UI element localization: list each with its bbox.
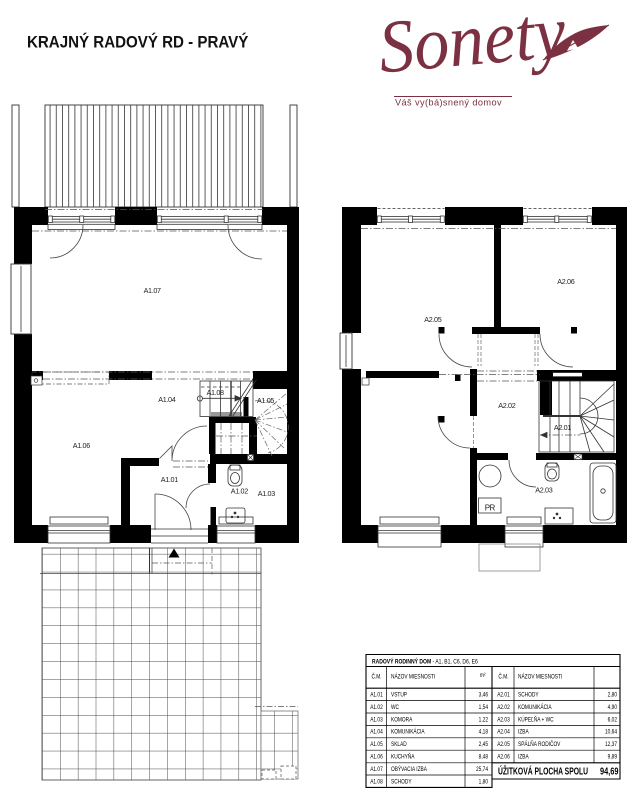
svg-text:KÚPEĽŇA + WC: KÚPEĽŇA + WC (518, 716, 554, 724)
svg-text:A2.01: A2.01 (497, 692, 510, 699)
svg-text:A2.02: A2.02 (497, 704, 510, 711)
svg-text:Č.M.: Č.M. (498, 673, 508, 681)
svg-text:A1.01: A1.01 (370, 692, 383, 699)
svg-text:KOMUNIKÁCIA: KOMUNIKÁCIA (391, 728, 425, 736)
svg-text:IZBA: IZBA (518, 729, 529, 736)
svg-text:SPÁLŇA RODIČOV: SPÁLŇA RODIČOV (518, 740, 561, 748)
svg-text:KRAJNÝ RADOVÝ RD - PRAVÝ: KRAJNÝ RADOVÝ RD - PRAVÝ (27, 32, 249, 52)
svg-text:NÁZOV MIESNOSTI: NÁZOV MIESNOSTI (391, 673, 436, 681)
svg-text:A1.02: A1.02 (231, 486, 248, 495)
svg-text:A1.06: A1.06 (73, 441, 90, 450)
svg-text:1,22: 1,22 (479, 717, 488, 724)
svg-text:4,18: 4,18 (479, 729, 488, 736)
svg-text:NÁZOV MIESNOSTI: NÁZOV MIESNOSTI (518, 673, 563, 681)
svg-text:94,69: 94,69 (600, 767, 619, 778)
svg-text:VSTUP: VSTUP (391, 692, 407, 699)
svg-text:KUCHYŇA: KUCHYŇA (391, 753, 415, 761)
svg-text:m²: m² (480, 672, 486, 679)
svg-text:25,74: 25,74 (476, 766, 488, 773)
svg-text:A2.03: A2.03 (535, 486, 552, 495)
svg-text:Č.M.: Č.M. (371, 673, 381, 681)
svg-text:1,80: 1,80 (479, 779, 488, 786)
svg-text:8,48: 8,48 (479, 754, 488, 761)
svg-text:SCHODY: SCHODY (518, 692, 539, 699)
svg-text:A2.02: A2.02 (498, 401, 515, 410)
svg-text:SCHODY: SCHODY (391, 779, 412, 786)
svg-text:A1.08: A1.08 (370, 779, 383, 786)
svg-text:2,80: 2,80 (608, 692, 617, 699)
svg-text:A2.06: A2.06 (497, 754, 510, 761)
svg-text:A1.07: A1.07 (144, 286, 161, 295)
svg-text:KOMORA: KOMORA (391, 717, 412, 724)
svg-text:ÚŽITKOVÁ PLOCHA SPOLU: ÚŽITKOVÁ PLOCHA SPOLU (498, 765, 588, 778)
svg-text:9,89: 9,89 (608, 754, 617, 761)
svg-text:A1.01: A1.01 (161, 475, 178, 484)
svg-text:A2.03: A2.03 (497, 717, 510, 724)
svg-text:Váš vy(bá)snený domov: Váš vy(bá)snený domov (395, 98, 502, 108)
svg-text:A2.01: A2.01 (554, 423, 571, 432)
svg-text:1,54: 1,54 (479, 704, 488, 711)
svg-text:2,45: 2,45 (479, 742, 488, 749)
svg-text:12,37: 12,37 (605, 742, 617, 749)
svg-text:4,90: 4,90 (608, 704, 617, 711)
svg-text:OBÝVACIA IZBA: OBÝVACIA IZBA (391, 765, 427, 773)
svg-text:A1.06: A1.06 (370, 754, 383, 761)
svg-text:6,02: 6,02 (608, 717, 617, 724)
svg-text:3,46: 3,46 (479, 692, 488, 699)
svg-text:A1.05: A1.05 (257, 396, 274, 405)
svg-text:10,64: 10,64 (605, 729, 617, 736)
svg-text:A2.05: A2.05 (424, 315, 441, 324)
svg-text:WC: WC (391, 704, 399, 711)
svg-text:A1.04: A1.04 (370, 729, 383, 736)
svg-text:A1.08: A1.08 (207, 388, 224, 397)
svg-text:A1.07: A1.07 (370, 766, 383, 773)
svg-text:A1.04: A1.04 (158, 395, 175, 404)
svg-text:PR: PR (485, 504, 496, 513)
svg-text:A1.02: A1.02 (370, 704, 383, 711)
svg-text:A2.04: A2.04 (497, 729, 510, 736)
svg-text:A1.05: A1.05 (370, 742, 383, 749)
svg-text:A2.05: A2.05 (497, 742, 510, 749)
svg-text:A1.03: A1.03 (258, 489, 275, 498)
svg-text:SKLAD: SKLAD (391, 742, 407, 749)
svg-text:A1.03: A1.03 (370, 717, 383, 724)
svg-text:RADOVÝ RODINNÝ DOM - A1, B1, C: RADOVÝ RODINNÝ DOM - A1, B1, C6, D6, E6 (372, 658, 478, 666)
svg-text:A2.06: A2.06 (557, 277, 574, 286)
svg-text:KOMUNIKÁCIA: KOMUNIKÁCIA (518, 703, 552, 711)
svg-text:IZBA: IZBA (518, 754, 529, 761)
